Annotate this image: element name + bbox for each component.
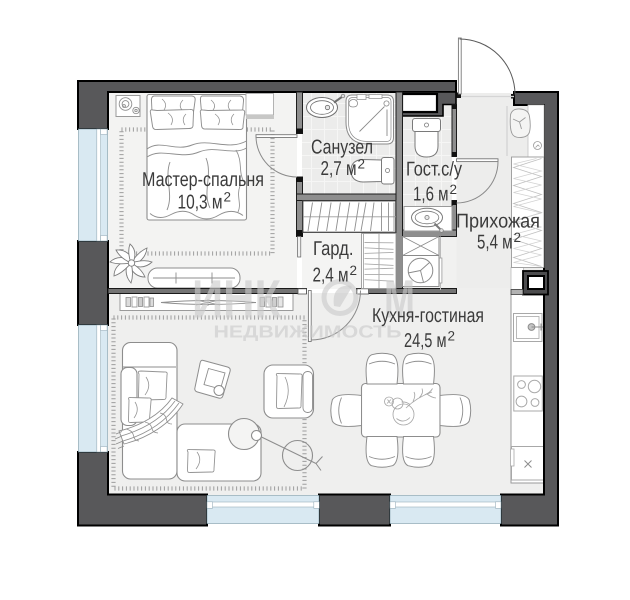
svg-text:Кухня-гостиная: Кухня-гостиная [372, 305, 484, 327]
svg-text:Санузел: Санузел [311, 137, 373, 159]
svg-text:Прихожая: Прихожая [456, 211, 540, 233]
svg-text:2,4 м: 2,4 м [313, 265, 349, 287]
svg-text:2: 2 [358, 157, 366, 172]
svg-text:2,7 м: 2,7 м [321, 158, 357, 180]
svg-text:Гард.: Гард. [313, 238, 354, 260]
svg-text:2: 2 [224, 190, 232, 205]
svg-text:2: 2 [514, 230, 522, 245]
svg-text:5,4 м: 5,4 м [477, 232, 513, 254]
svg-text:Гост.с/у: Гост.с/у [406, 159, 462, 181]
svg-text:Мастер-спальня: Мастер-спальня [142, 169, 264, 191]
svg-text:2: 2 [448, 329, 456, 344]
svg-text:10,3 м: 10,3 м [178, 192, 223, 214]
svg-text:2: 2 [350, 263, 358, 278]
svg-text:2: 2 [450, 182, 458, 197]
svg-text:24,5 м: 24,5 м [404, 330, 447, 352]
svg-text:1,6 м: 1,6 м [413, 184, 449, 206]
svg-text:ИНК: ИНК [192, 270, 282, 330]
